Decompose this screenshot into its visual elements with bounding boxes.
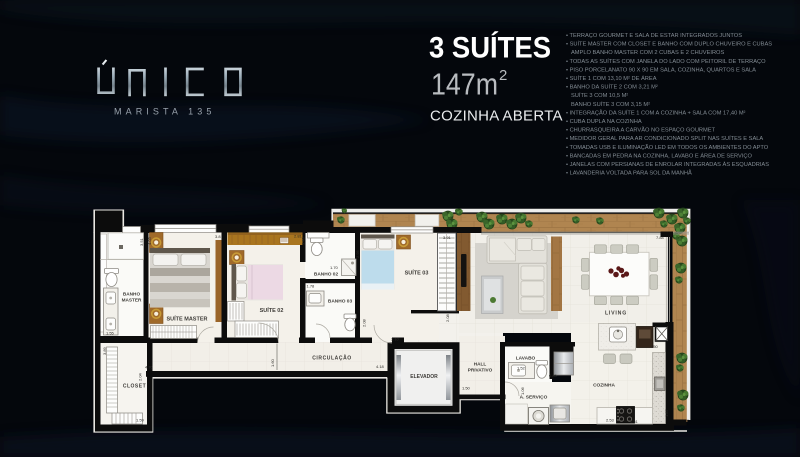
svg-text:1.59: 1.59 — [136, 418, 145, 423]
svg-text:LIVING: LIVING — [605, 311, 627, 317]
svg-text:4.50: 4.50 — [650, 344, 659, 349]
svg-text:MARISTA 135: MARISTA 135 — [114, 107, 215, 117]
svg-text:• TOMADAS USB E ILUMINAÇÃO LED: • TOMADAS USB E ILUMINAÇÃO LED EM TODOS … — [566, 144, 769, 151]
svg-text:1.06: 1.06 — [520, 386, 525, 395]
svg-text:4.03: 4.03 — [147, 236, 152, 245]
svg-text:1.70: 1.70 — [330, 265, 339, 270]
svg-text:3.51: 3.51 — [630, 419, 639, 424]
svg-text:CLOSET: CLOSET — [123, 384, 146, 390]
svg-text:BANHO: BANHO — [123, 292, 141, 297]
svg-text:3.91: 3.91 — [443, 235, 452, 240]
svg-text:• TODAS AS SUÍTES COM JANELA D: • TODAS AS SUÍTES COM JANELA DO LADO COM… — [566, 58, 766, 65]
svg-text:2: 2 — [499, 67, 507, 84]
svg-text:3.51: 3.51 — [139, 237, 144, 246]
svg-text:LAVABO: LAVABO — [516, 356, 536, 362]
svg-text:COZINHA: COZINHA — [593, 383, 615, 389]
svg-text:• SUÍTE MASTER COM CLOSET E BA: • SUÍTE MASTER COM CLOSET E BANHO COM DU… — [566, 41, 772, 48]
svg-text:4.18: 4.18 — [376, 364, 385, 369]
svg-text:3.10: 3.10 — [391, 337, 400, 342]
svg-text:1.52: 1.52 — [517, 366, 526, 371]
svg-text:AMPLO BANHO MASTER COM 2 CUBAS: AMPLO BANHO MASTER COM 2 CUBAS E 2 CHUVE… — [571, 50, 724, 56]
svg-text:0.85: 0.85 — [549, 373, 558, 378]
svg-text:2.95: 2.95 — [355, 249, 360, 258]
svg-text:• TERRAÇO GOURMET E SALA DE ES: • TERRAÇO GOURMET E SALA DE ESTAR INTEGR… — [566, 33, 742, 39]
svg-text:BANHO SUÍTE 3 COM 3,15 M²: BANHO SUÍTE 3 COM 3,15 M² — [571, 101, 650, 108]
svg-text:SUÍTE MASTER: SUÍTE MASTER — [167, 315, 208, 323]
svg-text:CIRCULAÇÃO: CIRCULAÇÃO — [312, 355, 352, 362]
svg-text:147m: 147m — [431, 67, 498, 102]
svg-text:4.70: 4.70 — [145, 365, 154, 370]
svg-text:3.8: 3.8 — [215, 234, 221, 239]
svg-text:3 SUÍTES: 3 SUÍTES — [429, 31, 551, 65]
svg-text:• SUÍTE 1 COM 13,10 M² DE ÁREA: • SUÍTE 1 COM 13,10 M² DE ÁREA — [566, 75, 657, 82]
svg-text:2.08: 2.08 — [445, 313, 450, 322]
svg-text:PRIVATIVO: PRIVATIVO — [468, 368, 493, 373]
svg-text:• LAVANDERIA VOLTADA PARA SOL: • LAVANDERIA VOLTADA PARA SOL DA MANHÃ — [566, 170, 692, 177]
svg-text:1.78: 1.78 — [307, 284, 316, 289]
svg-text:SUÍTE 3 COM 10,5 M²: SUÍTE 3 COM 10,5 M² — [571, 92, 628, 99]
svg-text:• JANELAS COM PERSIANAS DE ENR: • JANELAS COM PERSIANAS DE ENROLAR INTEG… — [566, 161, 769, 168]
svg-text:ELEVADOR: ELEVADOR — [410, 374, 438, 380]
svg-text:• PISO PORCELANATO 90 X 90 EM: • PISO PORCELANATO 90 X 90 EM SALA, COZI… — [566, 67, 756, 73]
svg-text:7.84: 7.84 — [656, 235, 665, 240]
svg-text:• CUBA DUPLA NA COZINHA: • CUBA DUPLA NA COZINHA — [566, 119, 642, 125]
svg-text:2.08: 2.08 — [362, 318, 367, 327]
svg-text:HALL: HALL — [474, 362, 487, 367]
svg-text:2.04: 2.04 — [138, 372, 143, 381]
svg-text:• CHURRASQUEIRA A CARVÃO NO ES: • CHURRASQUEIRA A CARVÃO NO ESPAÇO GOURM… — [566, 127, 716, 134]
svg-text:BANHO 03: BANHO 03 — [328, 299, 353, 305]
svg-text:1.50: 1.50 — [462, 386, 471, 391]
svg-text:• BANCADAS EM PEDRA NA COZINHA: • BANCADAS EM PEDRA NA COZINHA, LAVABO E… — [566, 152, 753, 159]
svg-text:• INTEGRAÇÃO DA SUÍTE 1 COM A: • INTEGRAÇÃO DA SUÍTE 1 COM A COZINHA + … — [566, 109, 746, 116]
svg-text:2.53: 2.53 — [606, 418, 615, 423]
svg-text:• BANHO DA SUÍTE 2 COM 3,21 M²: • BANHO DA SUÍTE 2 COM 3,21 M² — [566, 84, 658, 91]
svg-text:COZINHA ABERTA: COZINHA ABERTA — [430, 108, 563, 125]
svg-text:BANHO 02: BANHO 02 — [314, 272, 339, 278]
svg-text:SUÍTE 03: SUÍTE 03 — [405, 269, 429, 277]
svg-text:MASTER: MASTER — [122, 298, 142, 303]
svg-text:3.89: 3.89 — [102, 346, 107, 355]
svg-text:1.87: 1.87 — [664, 408, 669, 417]
svg-text:3.48: 3.48 — [301, 236, 306, 245]
svg-text:1.55: 1.55 — [106, 331, 115, 336]
svg-text:SUÍTE 02: SUÍTE 02 — [260, 306, 284, 314]
svg-text:1.60: 1.60 — [270, 358, 275, 367]
svg-text:• MEDIDOR GERAL PARA AR CONDIC: • MEDIDOR GERAL PARA AR CONDICIONADO SPL… — [566, 135, 763, 142]
